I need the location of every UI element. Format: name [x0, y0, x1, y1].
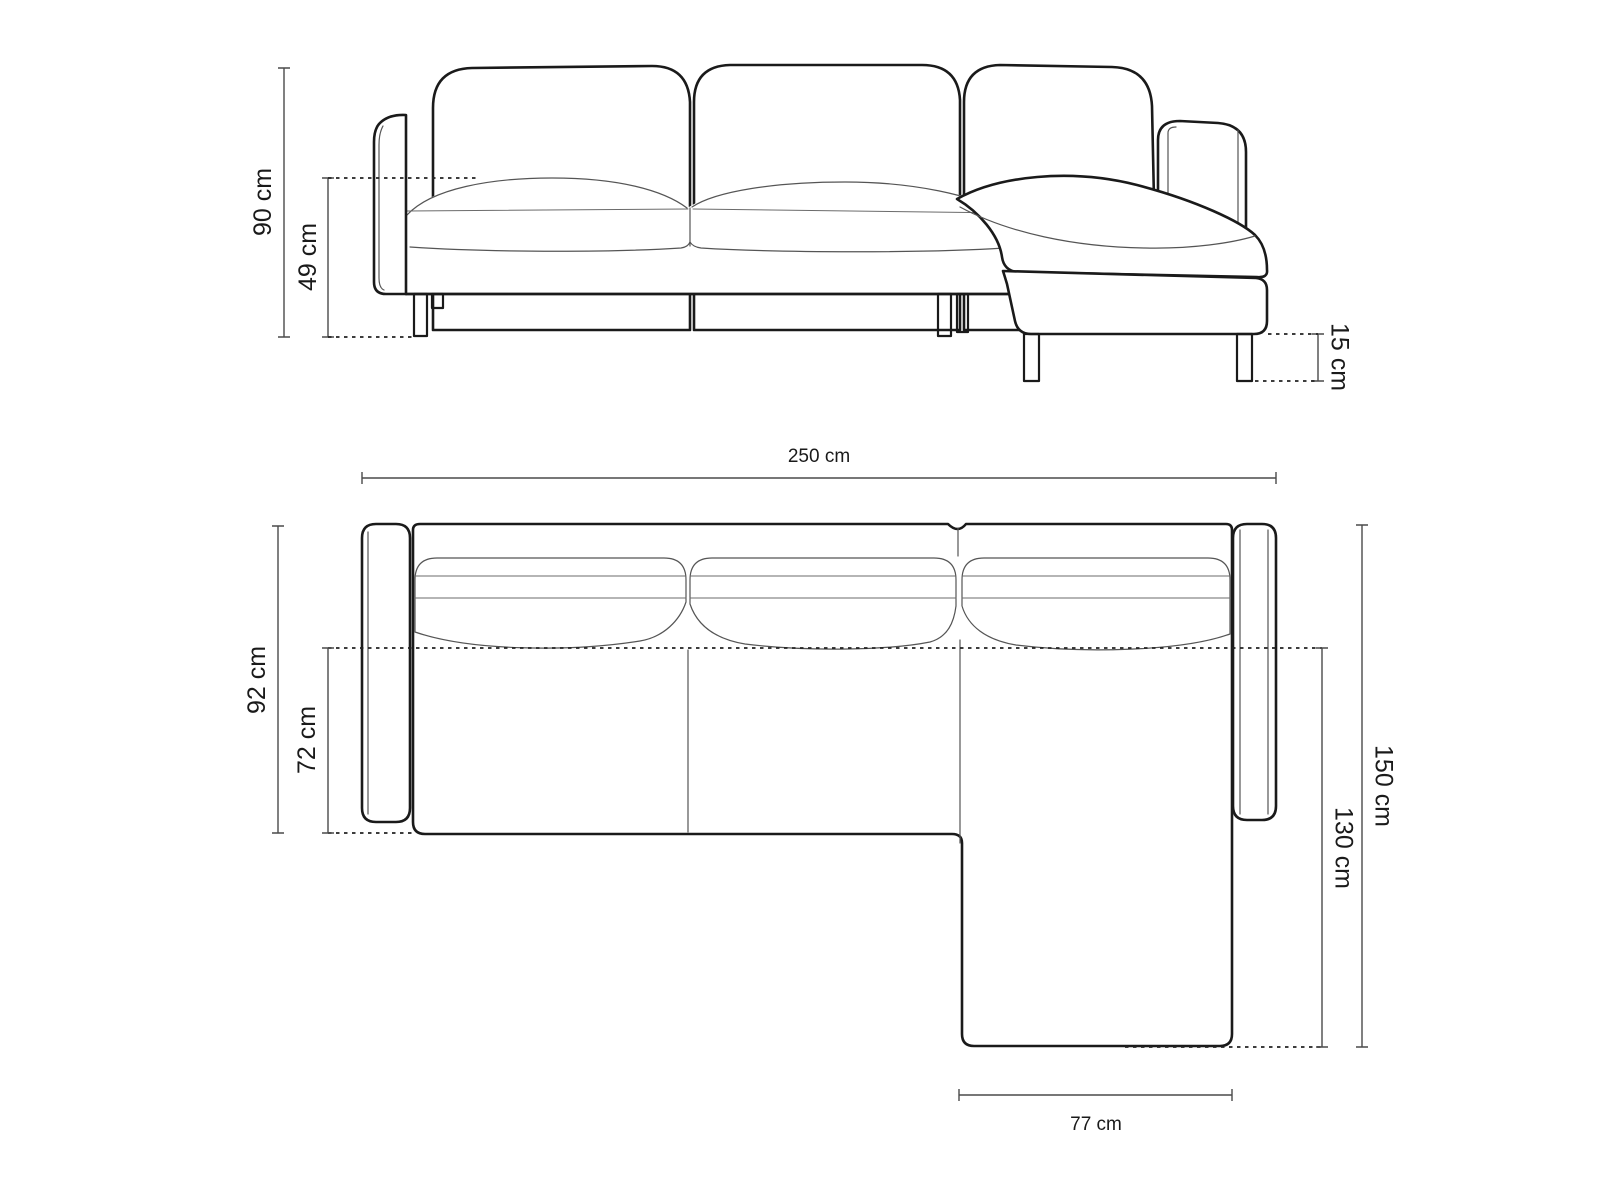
dimension-line — [1312, 334, 1324, 381]
front-chaise-base — [1003, 271, 1267, 334]
dimension-line — [1356, 525, 1368, 1047]
dim-label-leg-height: 15 cm — [1325, 323, 1353, 391]
top-dimension-body-depth: 92 cm — [243, 526, 284, 833]
dim-label-total-width: 250 cm — [788, 446, 850, 467]
dimension-line — [362, 472, 1276, 484]
dimension-line — [322, 648, 334, 833]
top-dimension-total-depth: 150 cm — [1356, 525, 1397, 1047]
top-view: 250 cm 92 cm 72 cm 150 cm 130 cm 77 cm — [243, 446, 1398, 1135]
dim-label-seat-height: 49 cm — [294, 223, 322, 291]
dim-label-chaise-depth: 130 cm — [1329, 807, 1357, 889]
front-dimension-leg-height: 15 cm — [1255, 323, 1353, 391]
top-dimension-chaise-width: 77 cm — [959, 1089, 1232, 1135]
diagram-canvas: 90 cm 49 cm 15 cm — [0, 0, 1600, 1200]
front-dimension-total-height: 90 cm — [249, 68, 290, 337]
top-dimension-chaise-depth: 130 cm — [1316, 648, 1357, 1047]
sofa-dimension-diagram: 90 cm 49 cm 15 cm — [0, 0, 1600, 1200]
dimension-line — [322, 178, 334, 337]
dimension-line — [1316, 648, 1328, 1047]
dim-label-total-depth: 150 cm — [1369, 745, 1397, 827]
dim-label-chaise-width: 77 cm — [1070, 1114, 1122, 1135]
front-leg-left-front — [414, 294, 427, 336]
front-view: 90 cm 49 cm 15 cm — [249, 65, 1354, 391]
top-dimension-seat-depth: 72 cm — [293, 648, 334, 833]
front-leg-chaise-right — [1237, 334, 1252, 381]
dimension-line — [272, 526, 284, 833]
dim-label-body-depth: 92 cm — [243, 646, 271, 714]
top-body-outline — [413, 524, 1232, 1046]
front-leg-chaise-left — [1024, 334, 1039, 381]
dimension-line — [278, 68, 290, 337]
top-left-armrest — [362, 524, 410, 822]
top-dimension-total-width: 250 cm — [362, 446, 1276, 484]
dim-label-seat-depth: 72 cm — [293, 706, 321, 774]
dim-label-total-height: 90 cm — [249, 168, 277, 236]
dimension-line — [959, 1089, 1232, 1101]
